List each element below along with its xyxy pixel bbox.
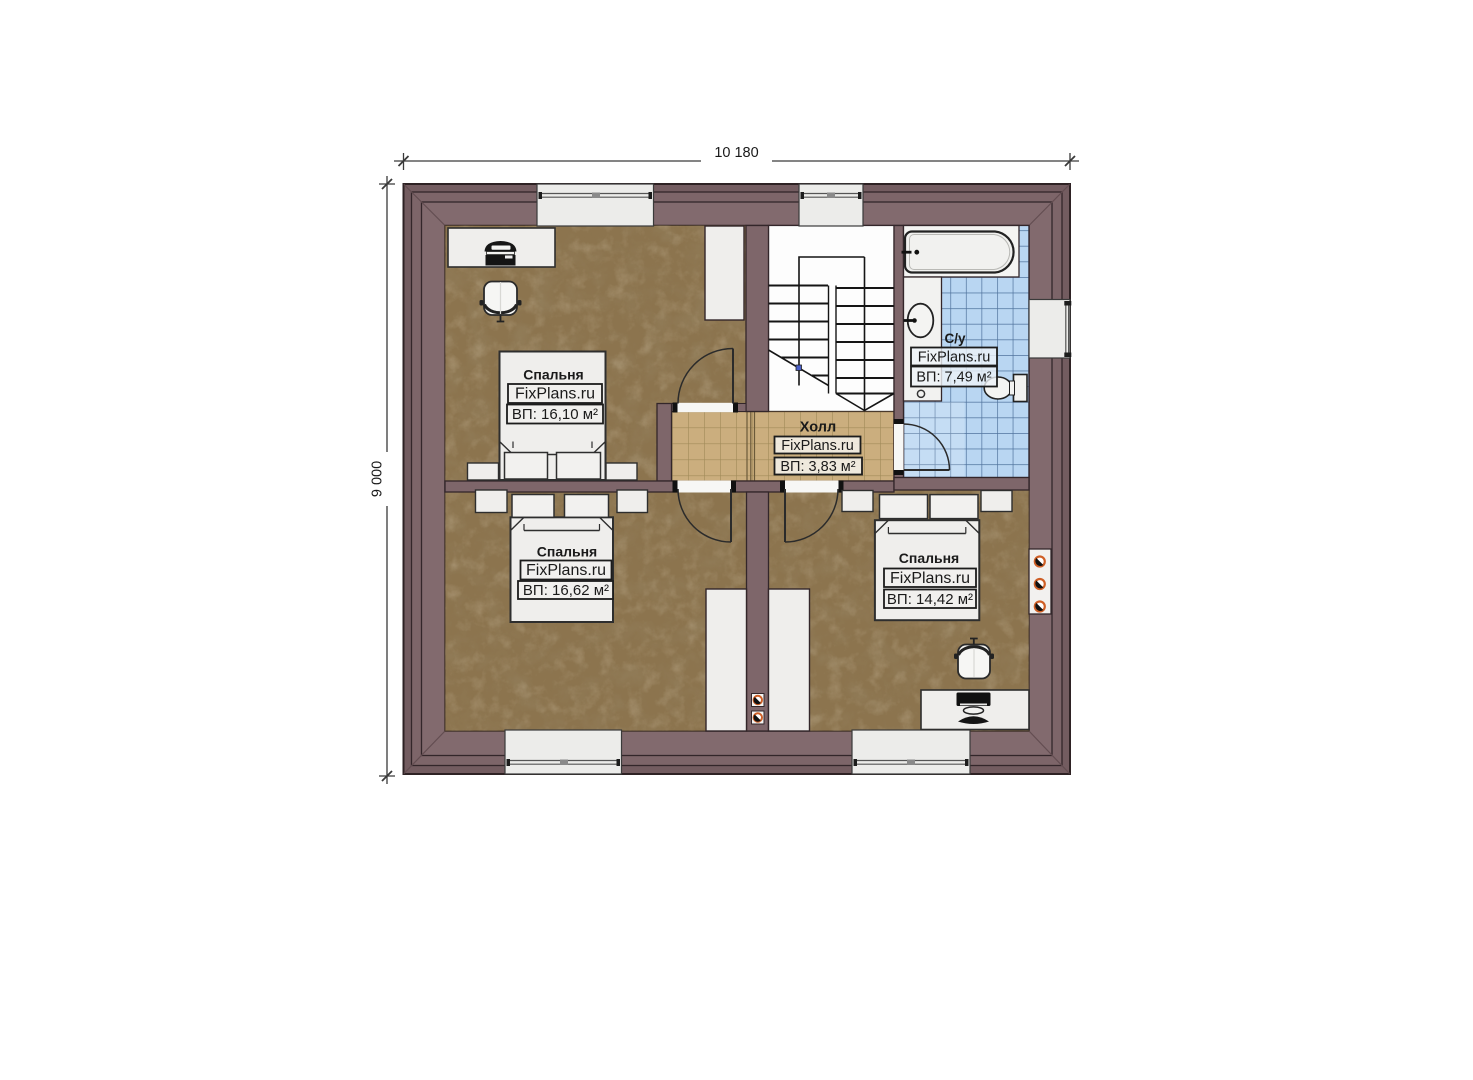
- svg-text:ВП: 3,83 м²: ВП: 3,83 м²: [780, 459, 855, 475]
- svg-text:FixPlans.ru: FixPlans.ru: [526, 562, 606, 579]
- svg-text:ВП: 7,49 м²: ВП: 7,49 м²: [916, 370, 991, 386]
- svg-text:Спальня: Спальня: [523, 367, 583, 383]
- svg-text:FixPlans.ru: FixPlans.ru: [781, 438, 854, 454]
- svg-text:9 000: 9 000: [370, 461, 386, 497]
- svg-text:FixPlans.ru: FixPlans.ru: [890, 570, 970, 587]
- svg-text:ВП: 14,42 м²: ВП: 14,42 м²: [887, 591, 973, 608]
- svg-text:FixPlans.ru: FixPlans.ru: [515, 386, 595, 403]
- svg-text:FixPlans.ru: FixPlans.ru: [918, 350, 991, 366]
- svg-text:ВП: 16,10 м²: ВП: 16,10 м²: [512, 406, 598, 423]
- svg-text:С/у: С/у: [944, 331, 966, 346]
- svg-text:ВП: 16,62 м²: ВП: 16,62 м²: [523, 582, 609, 599]
- svg-text:Холл: Холл: [800, 420, 836, 436]
- svg-text:Спальня: Спальня: [899, 550, 959, 566]
- svg-text:10 180: 10 180: [714, 145, 758, 161]
- svg-text:Спальня: Спальня: [537, 544, 597, 560]
